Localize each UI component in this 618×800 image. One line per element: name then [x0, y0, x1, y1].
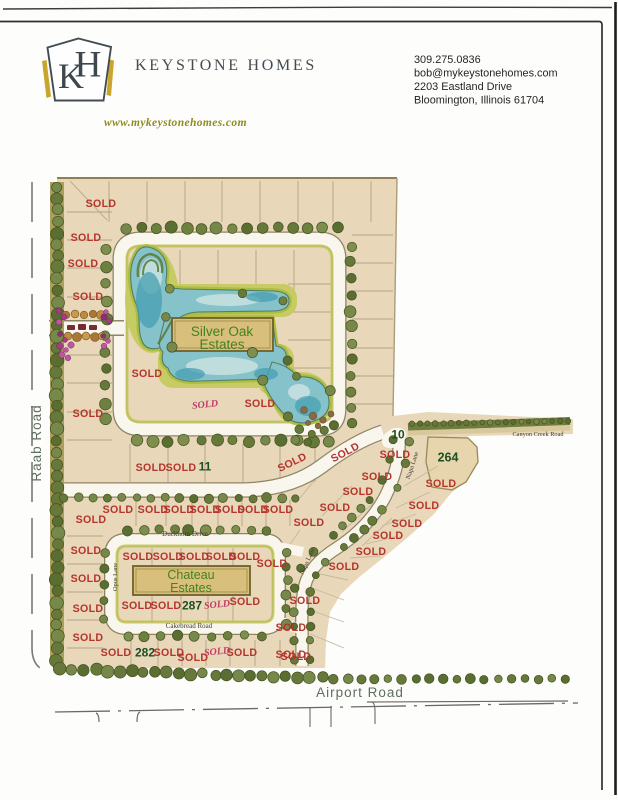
svg-text:SOLD: SOLD: [356, 546, 387, 558]
svg-text:Canyon Creek Road: Canyon Creek Road: [512, 431, 564, 438]
svg-text:SOLD: SOLD: [329, 561, 360, 573]
svg-text:KEYSTONE HOMES: KEYSTONE HOMES: [135, 57, 317, 74]
svg-text:SOLD: SOLD: [122, 600, 153, 612]
svg-text:SOLD: SOLD: [71, 232, 102, 244]
svg-text:SOLD: SOLD: [392, 518, 423, 530]
svg-text:SOLD: SOLD: [68, 258, 99, 270]
svg-text:SOLD: SOLD: [123, 551, 154, 563]
svg-text:Chateau: Chateau: [167, 568, 214, 582]
svg-text:SOLD: SOLD: [76, 514, 107, 526]
svg-text:SOLD: SOLD: [227, 647, 258, 659]
svg-text:SOLD: SOLD: [136, 462, 167, 474]
svg-text:SOLD: SOLD: [166, 462, 197, 474]
svg-text:Estates: Estates: [199, 337, 244, 352]
svg-text:SOLD: SOLD: [362, 471, 393, 483]
svg-text:SOLD: SOLD: [343, 486, 374, 498]
svg-text:Raab Road: Raab Road: [29, 404, 44, 481]
svg-text:Cakebread Road: Cakebread Road: [166, 622, 213, 630]
svg-text:SOLD: SOLD: [290, 595, 321, 607]
svg-text:SOLD: SOLD: [373, 530, 404, 542]
svg-text:SOLD: SOLD: [409, 500, 440, 512]
svg-text:SOLD: SOLD: [276, 622, 307, 634]
svg-text:SOLD: SOLD: [380, 449, 411, 461]
svg-text:287: 287: [182, 598, 202, 612]
svg-text:bob@mykeystonehomes.com: bob@mykeystonehomes.com: [414, 68, 558, 80]
svg-text:SOLD: SOLD: [132, 368, 163, 380]
svg-text:SOLD: SOLD: [73, 408, 104, 420]
svg-text:SOLD: SOLD: [71, 573, 102, 585]
svg-text:K: K: [58, 56, 84, 96]
svg-text:SOLD: SOLD: [245, 398, 276, 410]
svg-text:SOLD: SOLD: [71, 545, 102, 557]
svg-text:SOLD: SOLD: [320, 502, 351, 514]
svg-text:SOLD: SOLD: [263, 504, 294, 516]
svg-text:2203 Eastland Drive: 2203 Eastland Drive: [414, 81, 512, 93]
svg-text:Airport Road: Airport Road: [316, 685, 404, 700]
svg-text:282: 282: [135, 645, 155, 659]
svg-text:SOLD: SOLD: [103, 504, 134, 516]
svg-text:10: 10: [391, 427, 405, 441]
svg-text:SOLD: SOLD: [151, 600, 182, 612]
svg-text:www.mykeystonehomes.com: www.mykeystonehomes.com: [104, 117, 247, 129]
svg-text:11: 11: [199, 459, 212, 473]
svg-text:SOLD: SOLD: [281, 651, 312, 663]
svg-text:Duckhorn Drive: Duckhorn Drive: [162, 530, 208, 538]
svg-text:SOLD: SOLD: [73, 632, 104, 644]
svg-text:SOLD: SOLD: [426, 478, 457, 490]
svg-text:SOLD: SOLD: [101, 647, 132, 659]
svg-text:SOLD: SOLD: [257, 558, 288, 570]
svg-text:SOLD: SOLD: [230, 596, 261, 608]
svg-text:SOLD: SOLD: [86, 198, 117, 210]
svg-text:Bloomington, Illinois 61704: Bloomington, Illinois 61704: [414, 95, 544, 107]
svg-text:309.275.0836: 309.275.0836: [414, 54, 481, 66]
svg-text:SOLD: SOLD: [73, 291, 104, 303]
svg-text:Estates: Estates: [170, 581, 212, 595]
svg-text:SOLD: SOLD: [73, 603, 104, 615]
svg-text:Opus Lane: Opus Lane: [112, 563, 119, 591]
svg-text:264: 264: [438, 451, 459, 465]
svg-text:SOLD: SOLD: [294, 517, 325, 529]
